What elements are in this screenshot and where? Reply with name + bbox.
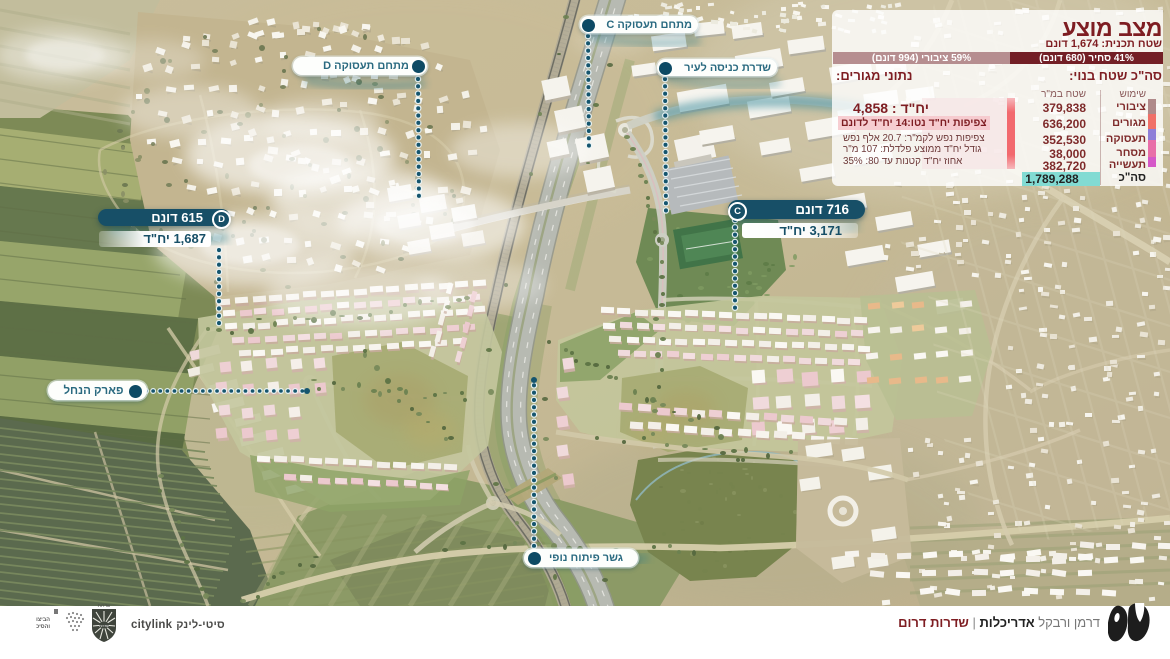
svg-text:שדרות: שדרות: [99, 624, 109, 628]
svg-text:והסיכון: והסיכון: [36, 624, 50, 630]
svg-text:שדרות: שדרות: [98, 603, 111, 608]
svg-text:הביצוע: הביצוע: [36, 617, 50, 623]
